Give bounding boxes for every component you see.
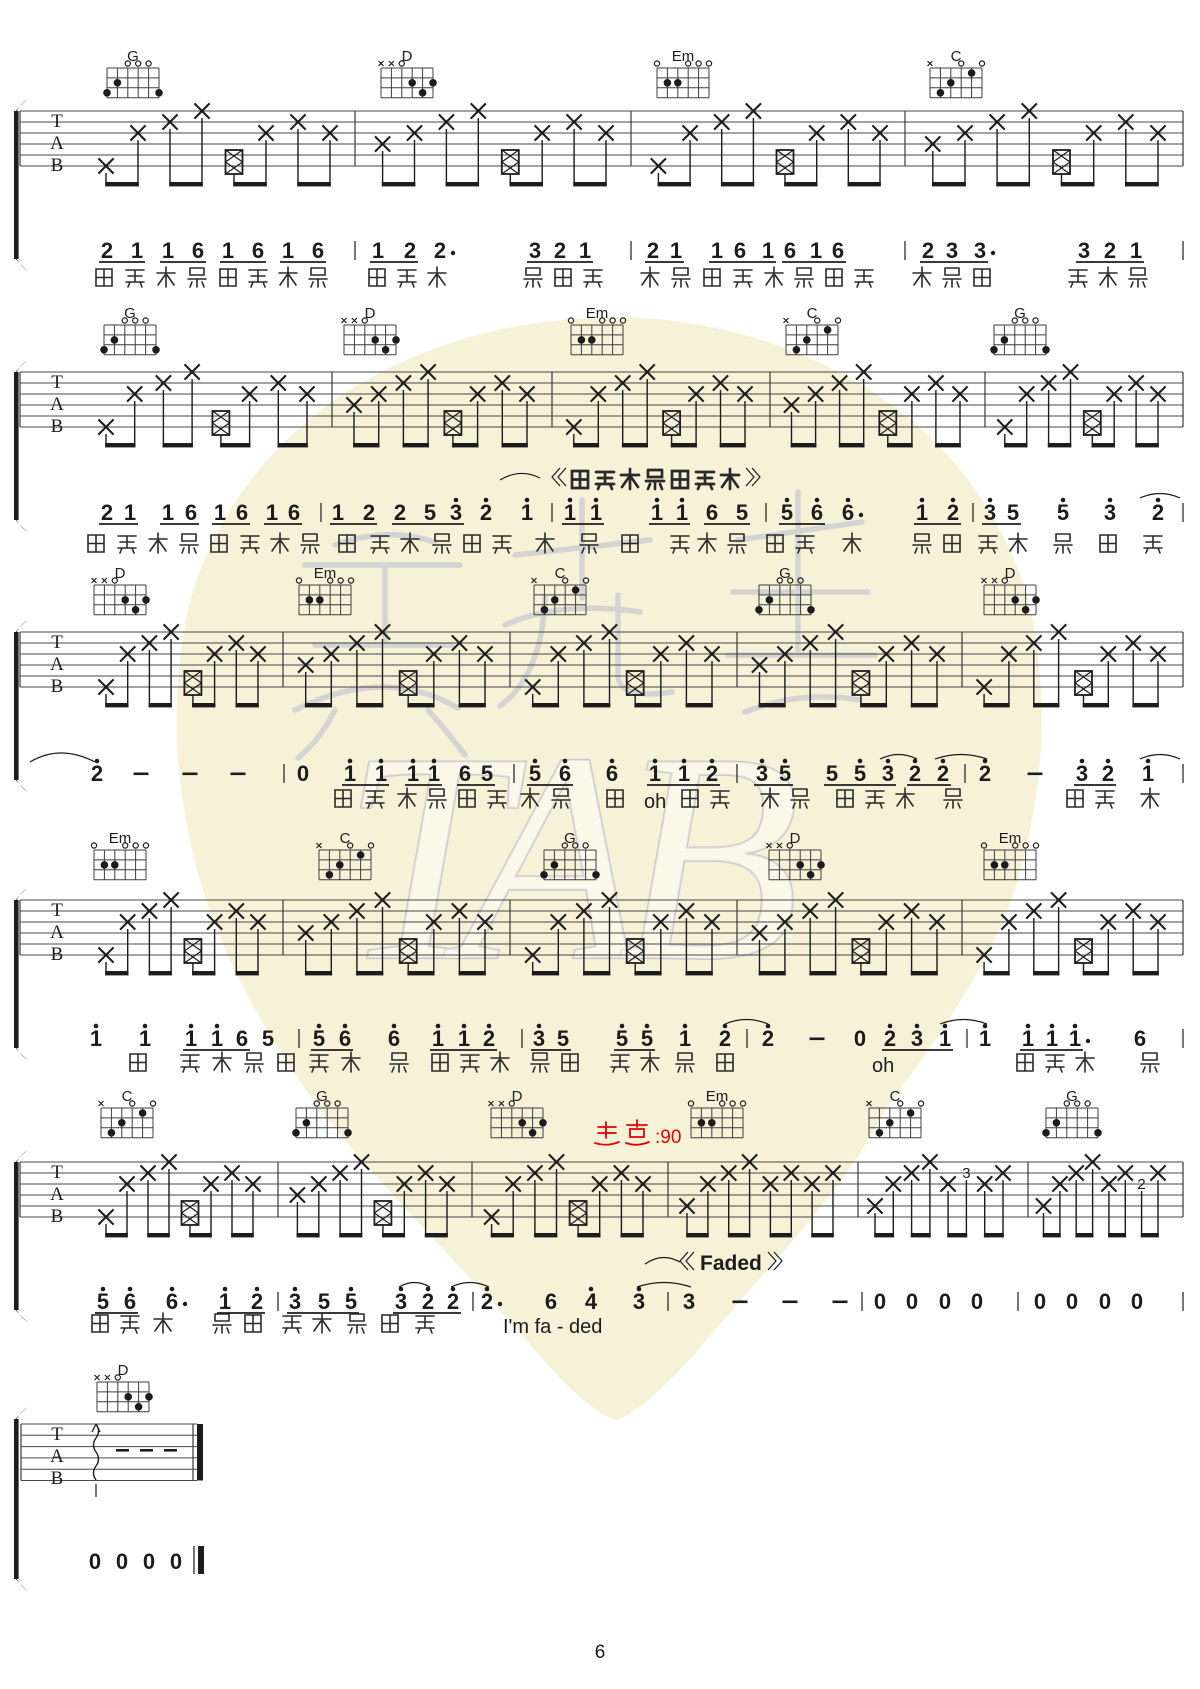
svg-text:6: 6 [606,761,618,786]
svg-text:2: 2 [762,1026,774,1051]
svg-text:3: 3 [633,1289,645,1314]
svg-text:1: 1 [1022,1026,1034,1051]
svg-text:G: G [564,830,576,847]
svg-text:B: B [51,416,64,437]
svg-text:0: 0 [170,1549,182,1574]
svg-text:2: 2 [1152,500,1164,525]
svg-text:0: 0 [1034,1289,1046,1314]
svg-text:3: 3 [882,761,894,786]
svg-text:0: 0 [116,1549,128,1574]
svg-text:T: T [51,900,63,921]
svg-text:6: 6 [734,238,746,263]
svg-text:3: 3 [911,1026,923,1051]
svg-text:1: 1 [266,500,278,525]
svg-text:2: 2 [404,238,416,263]
svg-text:6: 6 [339,1026,351,1051]
svg-text:6: 6 [124,1289,136,1314]
svg-text:5: 5 [529,761,541,786]
svg-text:2: 2 [979,761,991,786]
svg-text:3: 3 [289,1289,301,1314]
svg-text:0: 0 [874,1289,886,1314]
svg-text:6: 6 [236,1026,248,1051]
svg-text:5: 5 [616,1026,628,1051]
svg-text:1: 1 [162,238,174,263]
svg-text:2: 2 [101,500,113,525]
svg-text:T: T [51,632,63,653]
svg-text:2: 2 [1104,238,1116,263]
svg-text:1: 1 [649,761,661,786]
svg-text:6: 6 [459,761,471,786]
svg-text:1: 1 [219,1289,231,1314]
svg-text:2: 2 [480,500,492,525]
svg-text:3: 3 [450,500,462,525]
svg-text:G: G [779,565,791,582]
svg-text:2: 2 [101,238,113,263]
svg-text:6: 6 [236,500,248,525]
svg-text:I'm fa - ded: I'm fa - ded [503,1316,602,1338]
svg-text:A: A [50,133,64,154]
svg-text:T: T [51,111,63,132]
svg-text:0: 0 [939,1289,951,1314]
svg-text:1: 1 [90,1026,102,1051]
svg-text:2: 2 [394,500,406,525]
svg-text:A: A [50,1446,64,1467]
svg-text:0: 0 [906,1289,918,1314]
svg-text:2: 2 [937,761,949,786]
svg-text:2: 2 [91,761,103,786]
svg-text:C: C [951,48,962,65]
svg-text:2: 2 [947,500,959,525]
svg-text:2: 2 [909,761,921,786]
svg-text:6: 6 [559,761,571,786]
svg-text:T: T [51,1424,63,1445]
svg-text:0: 0 [854,1026,866,1051]
svg-text:2: 2 [719,1026,731,1051]
svg-text:3: 3 [395,1289,407,1314]
svg-text:A: A [50,922,64,943]
svg-text:1: 1 [939,1026,951,1051]
svg-text:A: A [50,1184,64,1205]
svg-text:1: 1 [375,761,387,786]
svg-text:1: 1 [131,238,143,263]
svg-text:3: 3 [1076,761,1088,786]
svg-text:6: 6 [288,500,300,525]
svg-text:1: 1 [1046,1026,1058,1051]
svg-text:5: 5 [97,1289,109,1314]
svg-text:oh: oh [872,1055,894,1077]
svg-text:1: 1 [670,238,682,263]
svg-text:1: 1 [185,1026,197,1051]
svg-text:1: 1 [222,238,234,263]
svg-text:1: 1 [676,500,688,525]
svg-text:D: D [790,830,801,847]
svg-text:2: 2 [706,761,718,786]
svg-text:5: 5 [262,1026,274,1051]
svg-text:2: 2 [1102,761,1114,786]
svg-text:5: 5 [345,1289,357,1314]
svg-text:D: D [115,565,126,582]
svg-text::90: :90 [655,1127,681,1148]
svg-text:1: 1 [211,1026,223,1051]
svg-text:5: 5 [313,1026,325,1051]
svg-text:1: 1 [1130,238,1142,263]
svg-text:2: 2 [447,1289,459,1314]
svg-text:2: 2 [922,238,934,263]
svg-text:1: 1 [162,500,174,525]
svg-text:6: 6 [706,500,718,525]
svg-text:1: 1 [432,1026,444,1051]
svg-text:3: 3 [756,761,768,786]
svg-text:2: 2 [434,238,446,263]
svg-text:2: 2 [483,1026,495,1051]
svg-text:1: 1 [711,238,723,263]
svg-text:0: 0 [1066,1289,1078,1314]
svg-text:6: 6 [595,1642,606,1663]
svg-text:1: 1 [678,761,690,786]
svg-text:0: 0 [1099,1289,1111,1314]
svg-text:2: 2 [251,1289,263,1314]
svg-text:1: 1 [458,1026,470,1051]
svg-text:6: 6 [784,238,796,263]
svg-text:5: 5 [781,500,793,525]
svg-text:B: B [51,676,64,697]
svg-text:G: G [316,1088,328,1105]
svg-text:5: 5 [318,1289,330,1314]
svg-text:5: 5 [736,500,748,525]
svg-text:6: 6 [842,500,854,525]
svg-text:6: 6 [811,500,823,525]
svg-text:3: 3 [683,1289,695,1314]
svg-text:1: 1 [564,500,576,525]
svg-text:B: B [51,1206,64,1227]
svg-text:C: C [555,565,566,582]
svg-text:5: 5 [424,500,436,525]
svg-text:2: 2 [363,500,375,525]
svg-text:6: 6 [545,1289,557,1314]
svg-text:B: B [51,155,64,176]
svg-text:D: D [365,305,376,322]
svg-text:G: G [1066,1088,1078,1105]
svg-text:A: A [50,654,64,675]
svg-text:0: 0 [89,1549,101,1574]
svg-text:1: 1 [428,761,440,786]
svg-text:1: 1 [979,1026,991,1051]
svg-text:5: 5 [826,761,838,786]
svg-text:4: 4 [585,1289,598,1314]
svg-text:1: 1 [1069,1026,1081,1051]
svg-text:3: 3 [529,238,541,263]
svg-text:6: 6 [252,238,264,263]
svg-text:5: 5 [641,1026,653,1051]
svg-text:D: D [512,1088,523,1105]
svg-text:Faded: Faded [700,1252,762,1275]
svg-text:3: 3 [1078,238,1090,263]
svg-text:1: 1 [579,238,591,263]
svg-text:5: 5 [779,761,791,786]
svg-text:5: 5 [557,1026,569,1051]
svg-text:1: 1 [282,238,294,263]
svg-text:3: 3 [1104,500,1116,525]
svg-text:2: 2 [884,1026,896,1051]
svg-text:B: B [51,944,64,965]
svg-text:G: G [124,305,136,322]
svg-text:C: C [807,305,818,322]
svg-text:5: 5 [1057,500,1069,525]
svg-text:3: 3 [946,238,958,263]
svg-text:C: C [122,1088,133,1105]
svg-text:5: 5 [1007,500,1019,525]
svg-text:2: 2 [1137,1176,1145,1193]
svg-text:3: 3 [984,500,996,525]
svg-text:1: 1 [679,1026,691,1051]
svg-text:1: 1 [139,1026,151,1051]
svg-text:1: 1 [1142,761,1154,786]
svg-text:G: G [127,48,139,65]
svg-text:D: D [1005,565,1016,582]
svg-text:T: T [51,372,63,393]
svg-text:3: 3 [974,238,986,263]
svg-text:T: T [51,1162,63,1183]
svg-text:1: 1 [651,500,663,525]
svg-text:6: 6 [185,500,197,525]
svg-text:5: 5 [481,761,493,786]
svg-text:D: D [402,48,413,65]
svg-text:2: 2 [647,238,659,263]
svg-text:1: 1 [810,238,822,263]
svg-text:6: 6 [832,238,844,263]
svg-text:B: B [51,1468,64,1489]
svg-text:1: 1 [332,500,344,525]
svg-text:G: G [1014,305,1026,322]
svg-text:2: 2 [422,1289,434,1314]
svg-text:1: 1 [344,761,356,786]
svg-text:1: 1 [590,500,602,525]
svg-text:1: 1 [521,500,533,525]
svg-text:0: 0 [297,761,309,786]
svg-text:6: 6 [166,1289,178,1314]
svg-text:0: 0 [143,1549,155,1574]
svg-text:6: 6 [1134,1026,1146,1051]
svg-text:3: 3 [533,1026,545,1051]
svg-text:1: 1 [762,238,774,263]
svg-text:6: 6 [312,238,324,263]
svg-text:C: C [890,1088,901,1105]
svg-text:1: 1 [407,761,419,786]
svg-text:2: 2 [554,238,566,263]
svg-text:oh: oh [644,791,666,813]
svg-text:C: C [340,830,351,847]
svg-text:0: 0 [971,1289,983,1314]
svg-text:A: A [50,394,64,415]
svg-text:6: 6 [192,238,204,263]
svg-text:2: 2 [481,1289,493,1314]
svg-text:6: 6 [388,1026,400,1051]
svg-text:0: 0 [1131,1289,1143,1314]
svg-text:1: 1 [916,500,928,525]
svg-text:1: 1 [372,238,384,263]
svg-text:1: 1 [214,500,226,525]
svg-text:3: 3 [962,1165,970,1182]
svg-text:D: D [118,1362,129,1379]
svg-text:1: 1 [124,500,136,525]
svg-text:5: 5 [854,761,866,786]
